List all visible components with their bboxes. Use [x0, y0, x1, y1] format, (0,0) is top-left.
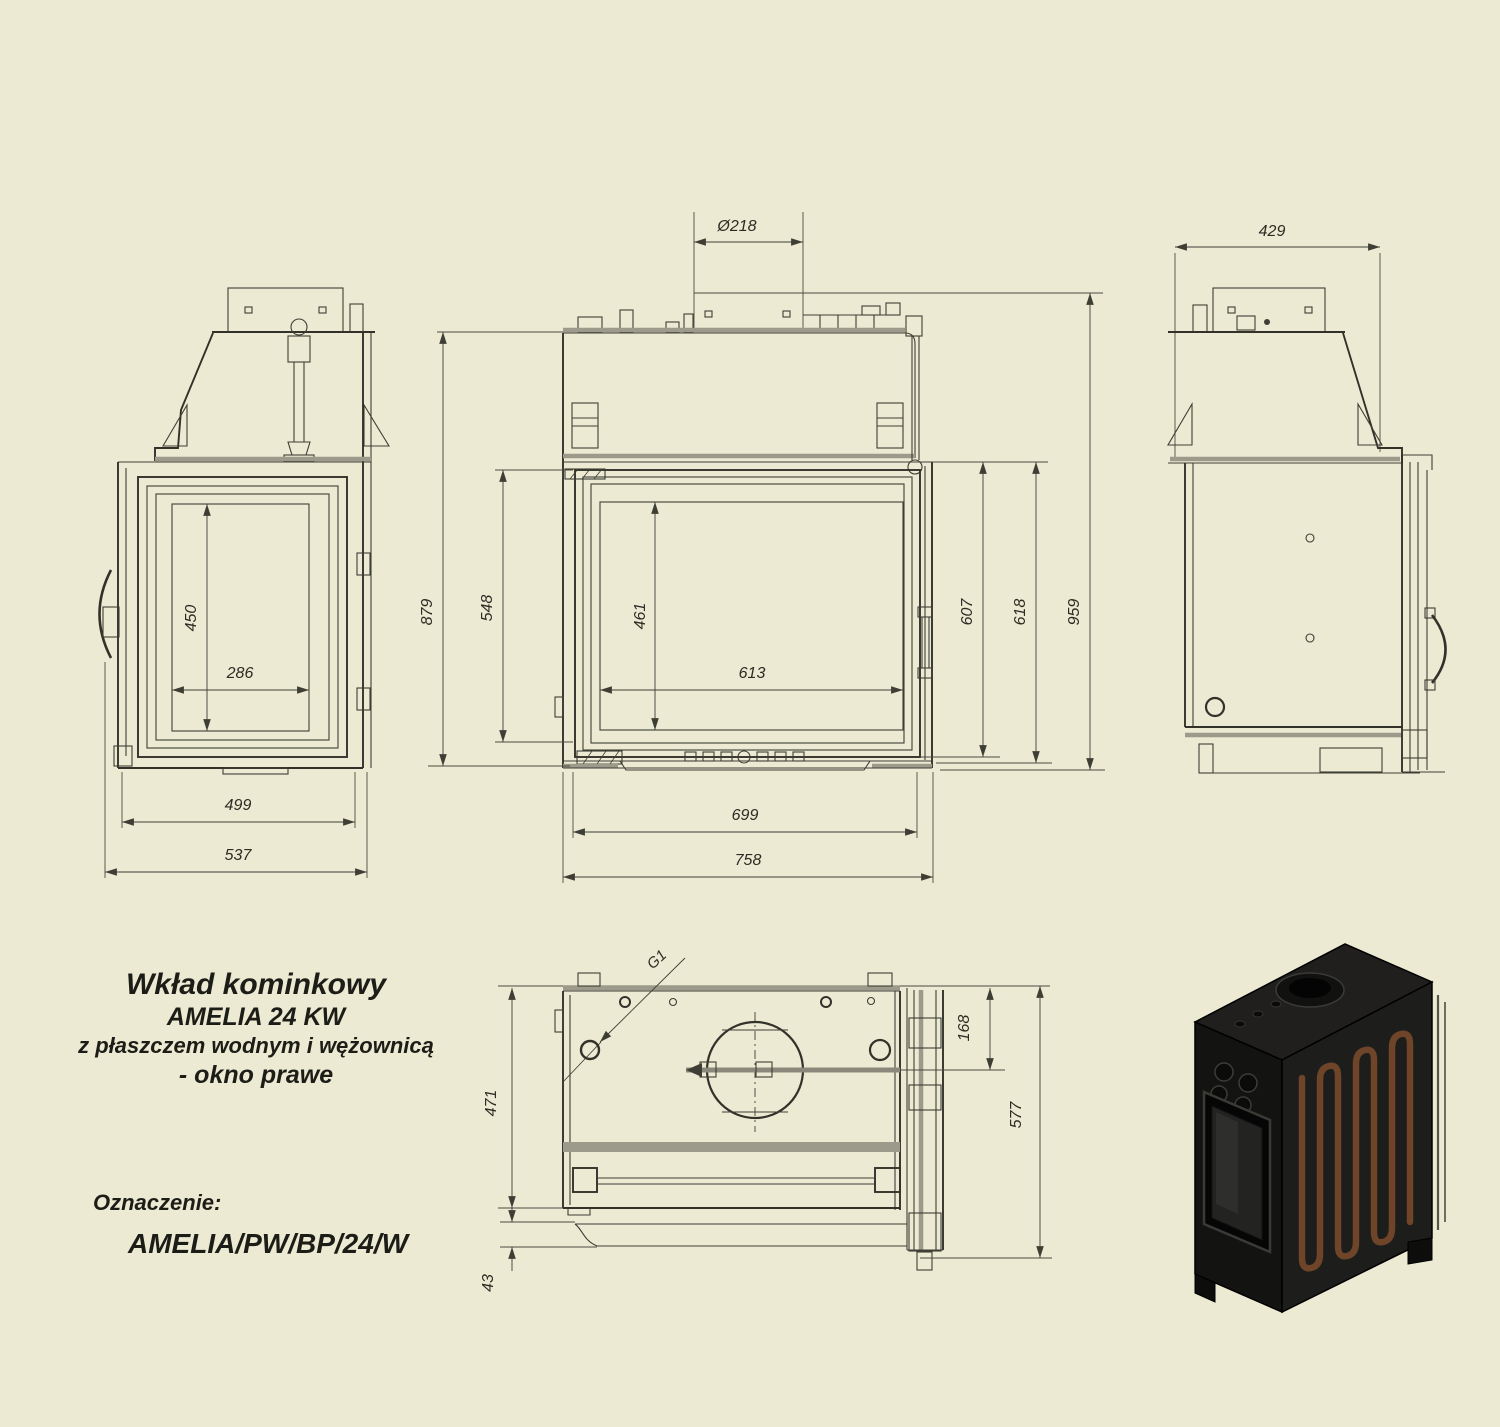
- dim-left-glass-width: 286: [226, 665, 254, 682]
- render-port: [1215, 1063, 1233, 1081]
- left-view-dimensions: 450 286 499 537: [105, 504, 367, 878]
- base-lip: [500, 1222, 907, 1247]
- hinge-lower: [1402, 730, 1427, 758]
- left-side-view: 450 286 499 537: [100, 288, 390, 878]
- dim-left-glass-height: 450: [183, 605, 200, 632]
- right-side-view: 429: [1168, 223, 1446, 773]
- firebox-body: [555, 462, 932, 770]
- dim-front-door-frame-height: 548: [479, 595, 496, 622]
- dim-top-overall-depth: 577: [1008, 1101, 1025, 1129]
- technical-drawing-sheet: 450 286 499 537 Ø218: [0, 0, 1500, 1427]
- mounting-plate: [1213, 288, 1325, 332]
- designation-label: Oznaczenie:: [93, 1190, 408, 1216]
- gusset-left: [1168, 404, 1192, 445]
- dim-left-body-width: 499: [225, 797, 252, 814]
- side-body: [1168, 459, 1420, 773]
- coil-port: [870, 1040, 890, 1060]
- g1-port-circle: [581, 1041, 599, 1059]
- foot: [1199, 744, 1213, 773]
- top-fittings: [578, 303, 900, 332]
- dim-front-glass-width: 613: [739, 665, 766, 682]
- front-view-dimensions: 879 548 461 613 607 618 959 699: [419, 293, 1105, 883]
- door-handle: [1432, 615, 1446, 683]
- rear-band: [563, 1142, 900, 1152]
- dim-top-body-depth: 471: [483, 1090, 500, 1117]
- door-frame: [138, 477, 347, 757]
- front-stub: [1193, 305, 1207, 332]
- product-model: AMELIA 24 KW: [52, 1002, 460, 1032]
- designation-block: Oznaczenie: AMELIA/PW/BP/24/W: [93, 1190, 408, 1260]
- lower-brackets: [573, 1168, 900, 1192]
- gusset-left: [163, 405, 187, 446]
- door-handle: [100, 570, 112, 658]
- dim-front-glass-height: 461: [632, 603, 649, 630]
- dim-front-flue-diameter: Ø218: [716, 218, 756, 235]
- drain-port: [1206, 698, 1224, 716]
- door-strip: [907, 988, 943, 1270]
- right-view-dimensions: 429: [1175, 223, 1380, 460]
- handle-pivot: [103, 607, 119, 637]
- dim-top-flue-axis-offset: 168: [956, 1015, 973, 1042]
- chimney-hood: [1168, 333, 1402, 462]
- top-tab-right: [868, 973, 892, 986]
- dim-top-thread-connection: G1: [644, 947, 670, 973]
- top-tab-left: [578, 973, 600, 986]
- rear-stub: [350, 304, 363, 332]
- dim-front-overall-width: 758: [735, 852, 762, 869]
- door-frame: [575, 470, 920, 757]
- designation-value: AMELIA/PW/BP/24/W: [128, 1228, 408, 1260]
- flue-collar: Ø218: [694, 212, 1103, 332]
- water-jacket: [563, 316, 922, 768]
- dim-front-firebox-height: 618: [1012, 599, 1029, 626]
- turnbuckle-hanger: [284, 319, 314, 461]
- dim-front-overall-height: 959: [1066, 599, 1083, 626]
- product-subtitle: z płaszczem wodnym i wężownicą: [52, 1032, 460, 1060]
- window-variant: - okno prawe: [52, 1060, 460, 1090]
- gusset-right: [364, 405, 389, 446]
- title-block: Wkład kominkowy AMELIA 24 KW z płaszczem…: [52, 968, 460, 1090]
- side-tab: [555, 1010, 563, 1032]
- chimney-hood: [155, 332, 389, 768]
- dim-front-jacket-height: 879: [419, 599, 436, 626]
- g1-connection: G1: [563, 947, 685, 1082]
- front-view: Ø218: [419, 212, 1105, 883]
- render-port: [1239, 1074, 1257, 1092]
- top-plan-view: G1: [480, 947, 1052, 1292]
- dim-right-overall-depth: 429: [1259, 223, 1286, 240]
- 3d-render: [1195, 944, 1445, 1312]
- damper-rod: [686, 1062, 900, 1077]
- dim-front-firebox-width: 699: [732, 807, 759, 824]
- dim-top-base-lip: 43: [480, 1274, 497, 1292]
- dim-left-overall-width: 537: [225, 847, 253, 864]
- dim-front-door-height: 607: [959, 598, 976, 626]
- product-title: Wkład kominkowy: [52, 968, 460, 1002]
- side-body: [100, 459, 372, 774]
- gusset-right: [1358, 404, 1382, 445]
- door-edge: [1402, 455, 1446, 772]
